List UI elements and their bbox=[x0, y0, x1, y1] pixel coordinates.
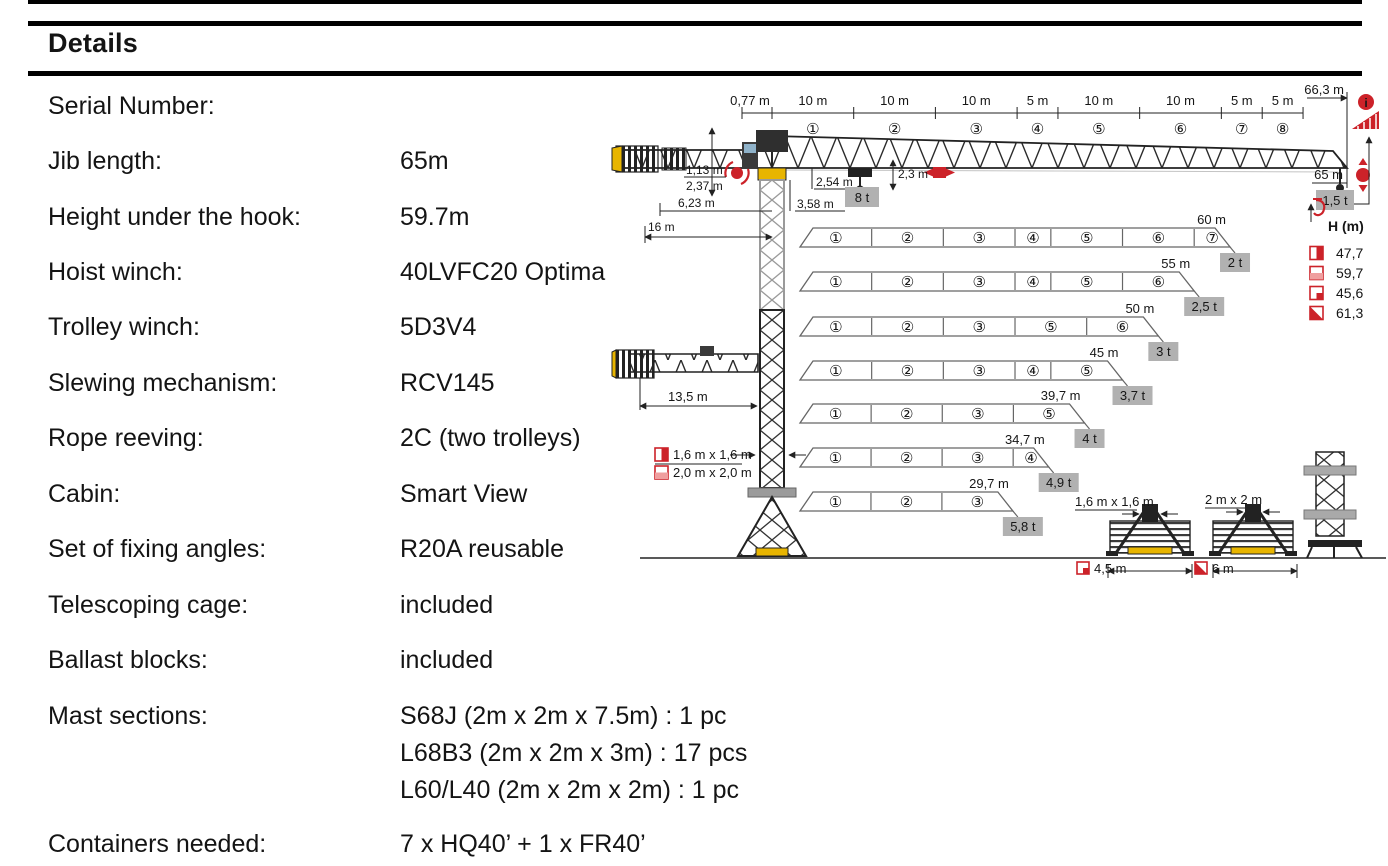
section-length: 5 m bbox=[1027, 93, 1049, 108]
detail-label: Ballast blocks: bbox=[48, 646, 208, 675]
config-section-number: ② bbox=[900, 405, 913, 423]
section-number: ④ bbox=[1031, 120, 1044, 138]
config-length: 29,7 m bbox=[969, 476, 1009, 491]
tower-upper bbox=[760, 180, 784, 310]
trestle bbox=[1308, 540, 1362, 547]
detail-label: Serial Number: bbox=[48, 92, 215, 121]
config-section-number: ③ bbox=[971, 493, 984, 511]
base-pad bbox=[756, 548, 788, 556]
jib-config-row: ①②③④⑤⑥55 m2,5 t bbox=[800, 256, 1224, 316]
config-section-number: ⑤ bbox=[1080, 229, 1093, 247]
config-section-number: ⑤ bbox=[1080, 273, 1093, 291]
jib-truss bbox=[772, 136, 1347, 168]
section-length: 10 m bbox=[962, 93, 991, 108]
config-section-number: ③ bbox=[972, 229, 985, 247]
section-length: 10 m bbox=[1084, 93, 1113, 108]
detail-label: Mast sections: bbox=[48, 702, 208, 731]
config-length: 45 m bbox=[1090, 345, 1119, 360]
config-section-number: ① bbox=[829, 362, 842, 380]
tower-head bbox=[756, 130, 788, 152]
jib-total-length: 66,3 m bbox=[1304, 82, 1344, 97]
config-section-number: ⑤ bbox=[1080, 362, 1093, 380]
crane-diagram: i 1,13 m 2,37 m 6,23 m 16 m 3,58 m bbox=[610, 80, 1388, 590]
mast-size-label: 2,0 m x 2,0 m bbox=[673, 465, 752, 480]
detail-label: Slewing mechanism: bbox=[48, 369, 277, 398]
config-section-number: ⑤ bbox=[1042, 405, 1055, 423]
config-length: 34,7 m bbox=[1005, 432, 1045, 447]
config-section-number: ① bbox=[829, 449, 842, 467]
config-tip-load: 3 t bbox=[1156, 344, 1171, 359]
dim-hook: 2,3 m bbox=[898, 167, 928, 181]
section-length: 10 m bbox=[798, 93, 827, 108]
config-section-number: ③ bbox=[972, 318, 985, 336]
slewing-unit bbox=[758, 168, 786, 180]
detail-value: 2C (two trolleys) bbox=[400, 424, 581, 453]
config-section-number: ② bbox=[901, 318, 914, 336]
detail-label: Hoist winch: bbox=[48, 258, 183, 287]
section-length: 5 m bbox=[1272, 93, 1294, 108]
config-section-number: ① bbox=[829, 229, 842, 247]
jib-configurations: ①②③④⑤⑥⑦60 m2 t①②③④⑤⑥55 m2,5 t①②③⑤⑥50 m3 … bbox=[800, 212, 1250, 536]
tip-radius: 65 m bbox=[1314, 167, 1343, 182]
config-section-number: ① bbox=[829, 493, 842, 511]
config-section-number: ③ bbox=[971, 405, 984, 423]
detail-value: R20A reusable bbox=[400, 535, 564, 564]
config-section-number: ④ bbox=[1024, 449, 1037, 467]
section-number: ⑧ bbox=[1276, 120, 1289, 138]
section-number: ① bbox=[806, 120, 819, 138]
jib-config-row: ①②③⑤39,7 m4 t bbox=[800, 388, 1105, 448]
config-length: 55 m bbox=[1161, 256, 1190, 271]
detail-value: 65m bbox=[400, 147, 449, 176]
detail-label: Rope reeving: bbox=[48, 424, 204, 453]
config-section-number: ③ bbox=[971, 449, 984, 467]
base-size-label: 2 m x 2 m bbox=[1205, 492, 1262, 507]
legend-height-value: 45,6 bbox=[1336, 285, 1363, 301]
detail-value: 40LVFC20 Optima bbox=[400, 258, 605, 287]
base-width-label: 4,5 m bbox=[1094, 561, 1127, 576]
config-section-number: ② bbox=[900, 449, 913, 467]
config-section-number: ① bbox=[829, 405, 842, 423]
section-length: 10 m bbox=[1166, 93, 1195, 108]
config-section-number: ④ bbox=[1026, 229, 1039, 247]
config-section-number: ⑦ bbox=[1205, 229, 1218, 247]
counterweight-stack-2 bbox=[662, 148, 686, 170]
trolley-arrow-right bbox=[946, 169, 955, 177]
tip-load-value: 1,5 t bbox=[1322, 193, 1348, 208]
dim-counterjib-width: 6,23 m bbox=[678, 196, 715, 210]
cross-base bbox=[738, 497, 806, 556]
detail-value: S68J (2m x 2m x 7.5m) : 1 pcL68B3 (2m x … bbox=[400, 702, 747, 813]
config-tip-load: 5,8 t bbox=[1010, 519, 1036, 534]
detail-value: included bbox=[400, 646, 493, 675]
cross-base-B bbox=[1209, 504, 1297, 556]
legend-height-value: 47,7 bbox=[1336, 245, 1363, 261]
legend-title: H (m) bbox=[1328, 218, 1364, 234]
config-section-number: ① bbox=[829, 273, 842, 291]
config-section-number: ⑤ bbox=[1044, 318, 1057, 336]
config-tip-load: 3,7 t bbox=[1120, 388, 1146, 403]
counter-jib-nose bbox=[612, 146, 622, 172]
config-section-number: ② bbox=[901, 229, 914, 247]
section-number: ⑦ bbox=[1235, 120, 1248, 138]
config-tip-load: 4,9 t bbox=[1046, 475, 1072, 490]
dim-head-height: 2,37 m bbox=[686, 179, 723, 193]
detail-label: Trolley winch: bbox=[48, 313, 200, 342]
config-tip-load: 4 t bbox=[1082, 431, 1097, 446]
config-section-number: ④ bbox=[1026, 362, 1039, 380]
section-number: ⑥ bbox=[1174, 120, 1187, 138]
config-section-number: ② bbox=[900, 493, 913, 511]
config-section-number: ① bbox=[829, 318, 842, 336]
detail-label: Telescoping cage: bbox=[48, 591, 248, 620]
detail-value: 7 x HQ40’ + 1 x FR40’ bbox=[400, 830, 646, 859]
alt-view-dimension: 13,5 m bbox=[668, 389, 708, 404]
config-section-number: ② bbox=[901, 273, 914, 291]
detail-label: Containers needed: bbox=[48, 830, 266, 859]
legend-height-value: 61,3 bbox=[1336, 305, 1363, 321]
dim-jib-height: 1,13 m bbox=[686, 163, 723, 177]
trolley-travel-icon bbox=[933, 167, 946, 178]
load-ramp-icon bbox=[1352, 111, 1379, 129]
config-tip-load: 2 t bbox=[1228, 255, 1243, 270]
details-list: Serial Number:Jib length:65mHeight under… bbox=[0, 0, 640, 866]
base-size-label: 1,6 m x 1,6 m bbox=[1075, 494, 1154, 509]
info-icon-glyph: i bbox=[1364, 96, 1367, 110]
cabin-window bbox=[744, 144, 756, 153]
detail-label: Jib length: bbox=[48, 147, 162, 176]
height-legend-rows: 47,759,745,661,3 bbox=[1310, 245, 1363, 321]
jib-config-row: ①②③④34,7 m4,9 t bbox=[800, 432, 1079, 492]
config-length: 50 m bbox=[1125, 301, 1154, 316]
config-section-number: ③ bbox=[972, 273, 985, 291]
hoisting-icon bbox=[1356, 168, 1370, 182]
config-length: 39,7 m bbox=[1041, 388, 1081, 403]
config-section-number: ⑥ bbox=[1152, 273, 1165, 291]
jib-section-dimension-chain: 0,77 m10 m①10 m②10 m③5 m④10 m⑤10 m⑥5 m⑦5… bbox=[730, 93, 1303, 138]
detail-value: RCV145 bbox=[400, 369, 495, 398]
jib-root-length: 0,77 m bbox=[730, 93, 770, 108]
jib-config-row: ①②③④⑤45 m3,7 t bbox=[800, 345, 1153, 405]
dim-trolley: 2,54 m bbox=[816, 175, 853, 189]
max-load-value: 8 t bbox=[855, 190, 870, 205]
section-length: 10 m bbox=[880, 93, 909, 108]
tower-lower bbox=[760, 310, 784, 488]
dim-counterjib-radius: 16 m bbox=[648, 220, 675, 234]
config-section-number: ⑥ bbox=[1152, 229, 1165, 247]
legend-height-value: 59,7 bbox=[1336, 265, 1363, 281]
jib-config-row: ①②③29,7 m5,8 t bbox=[800, 476, 1043, 536]
cross-base-A bbox=[1106, 504, 1194, 556]
detail-value: Smart View bbox=[400, 480, 527, 509]
detail-value: 59.7m bbox=[400, 203, 469, 232]
section-number: ② bbox=[888, 120, 901, 138]
section-number: ⑤ bbox=[1092, 120, 1105, 138]
mast-size-label: 1,6 m x 1,6 m bbox=[673, 447, 752, 462]
config-section-number: ② bbox=[901, 362, 914, 380]
counter-jib-alt-view: 13,5 m bbox=[612, 346, 758, 410]
base-width-label: 6 m bbox=[1212, 561, 1234, 576]
config-length: 60 m bbox=[1197, 212, 1226, 227]
dim-head: 3,58 m bbox=[797, 197, 834, 211]
slewing-icon bbox=[731, 167, 743, 179]
section-number: ③ bbox=[970, 120, 983, 138]
config-section-number: ⑥ bbox=[1116, 318, 1129, 336]
detail-label: Cabin: bbox=[48, 480, 120, 509]
section-length: 5 m bbox=[1231, 93, 1253, 108]
config-tip-load: 2,5 t bbox=[1192, 299, 1218, 314]
config-section-number: ③ bbox=[972, 362, 985, 380]
detail-label: Height under the hook: bbox=[48, 203, 301, 232]
config-section-number: ④ bbox=[1026, 273, 1039, 291]
detail-value: 5D3V4 bbox=[400, 313, 476, 342]
detail-value: included bbox=[400, 591, 493, 620]
mast-section-stack bbox=[1316, 452, 1344, 536]
jib-config-row: ①②③⑤⑥50 m3 t bbox=[800, 301, 1178, 361]
spec-sheet: { "page": { "title": "Details" }, "detai… bbox=[0, 0, 1388, 866]
detail-label: Set of fixing angles: bbox=[48, 535, 266, 564]
